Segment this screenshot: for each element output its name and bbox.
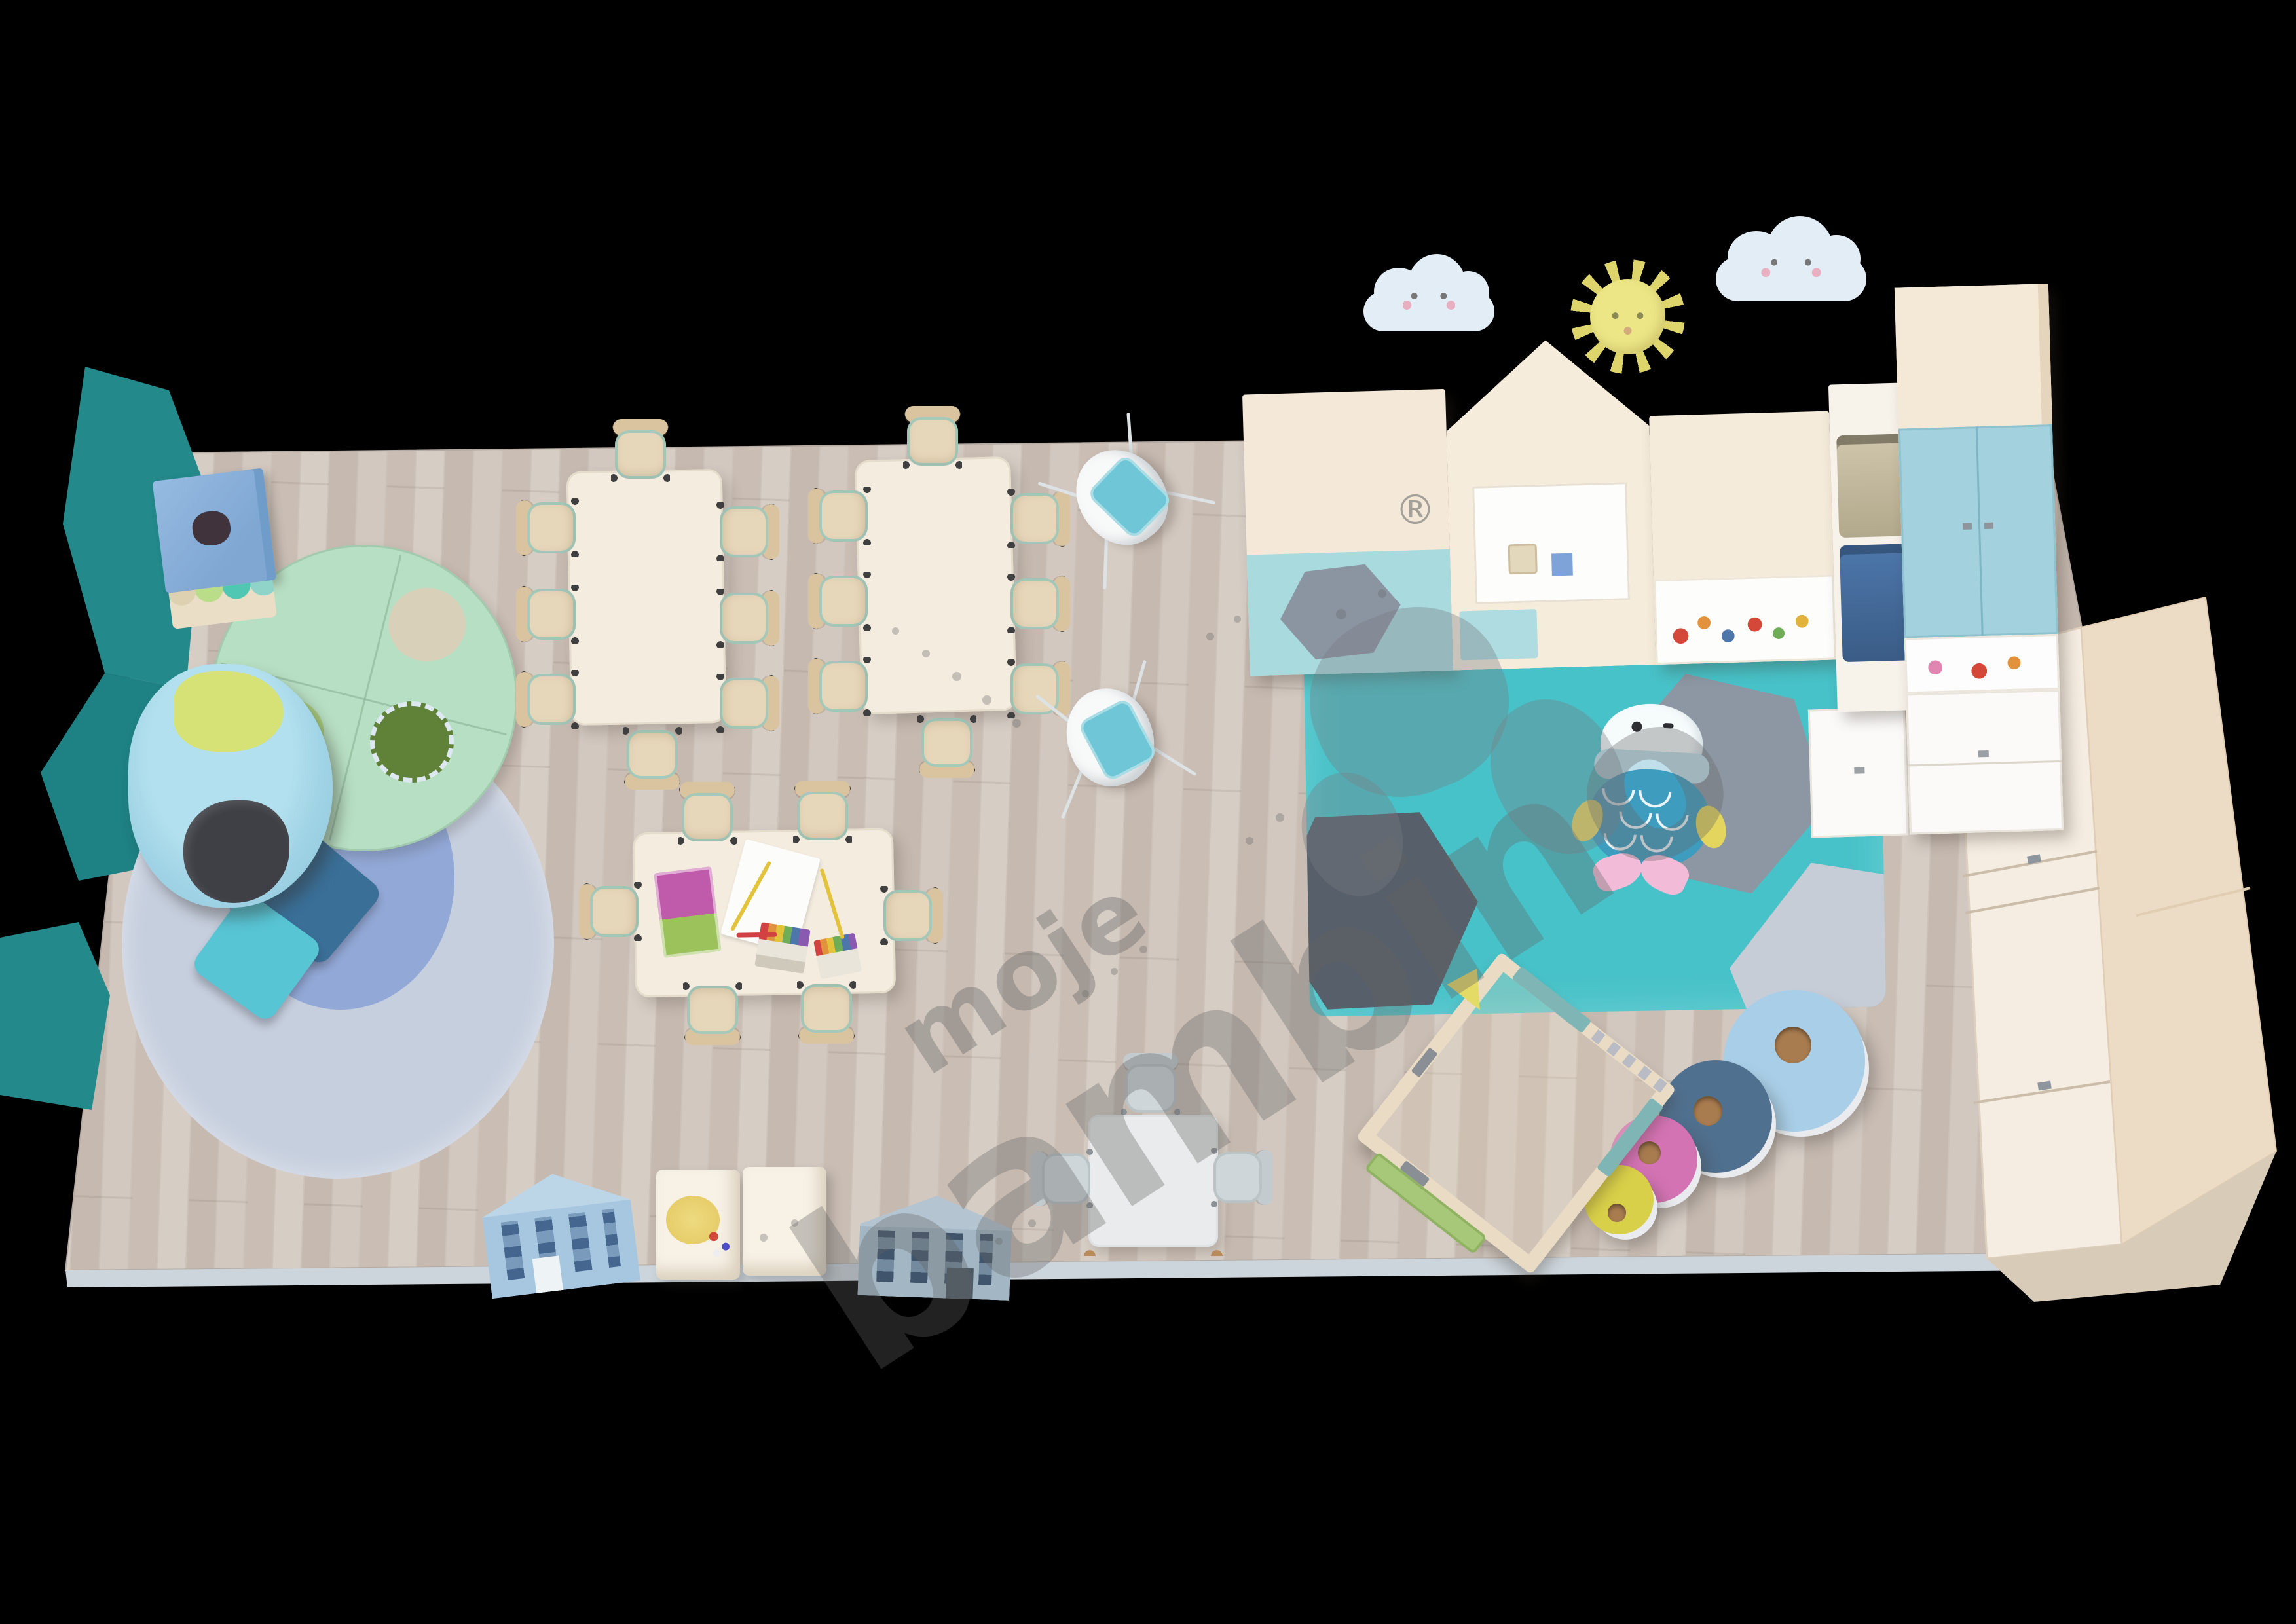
pencil-yellow-2 <box>820 868 845 940</box>
toy-shelf-toys <box>1659 588 1830 655</box>
kids-chair <box>611 419 670 482</box>
chair-seat <box>1125 1064 1176 1113</box>
kids-chair <box>623 727 682 790</box>
chair-seat <box>1010 493 1059 544</box>
tall-cabinet-white-doors <box>1906 690 2064 834</box>
storage-cube-1 <box>656 1170 740 1280</box>
registered-trademark-symbol: ® <box>1395 486 1435 534</box>
kids-chair <box>716 502 779 561</box>
tall-cabinet <box>1895 284 2064 834</box>
cubby-play-box <box>152 468 281 633</box>
pouf-hole <box>1694 1096 1723 1126</box>
chair-seat <box>682 793 733 841</box>
play-house-gable <box>1511 966 1591 1033</box>
bean-bag-leaf-print <box>174 671 284 752</box>
house-shelf-unit <box>1444 337 1656 670</box>
watermark-dot <box>1336 609 1346 619</box>
chair-seat <box>687 986 738 1034</box>
chair-seat <box>801 984 852 1033</box>
cube-small-toys <box>705 1227 735 1259</box>
play-house-roof-rails <box>1591 1029 1669 1094</box>
cubby-top-face <box>152 468 276 593</box>
pouf-hole <box>1775 1027 1811 1063</box>
shelf-toys <box>1508 544 1538 574</box>
play-house-gable <box>1597 1098 1664 1177</box>
shelf-toys <box>1908 638 2056 690</box>
tall-cabinet-top <box>1895 284 2052 428</box>
storage-bin-blue <box>1840 544 1912 662</box>
gray-chair <box>1210 1148 1273 1207</box>
bookcase-windows <box>876 1230 993 1285</box>
kids-chair <box>808 487 871 545</box>
kids-chair <box>579 882 642 941</box>
watermark-dot <box>1111 968 1118 975</box>
gray-chair <box>1031 1149 1094 1208</box>
watermark-dot <box>1246 837 1253 845</box>
storage-bin-khaki <box>1836 434 1908 538</box>
watermark-dot <box>1082 990 1089 997</box>
square-table <box>1088 1115 1218 1247</box>
watermark-dot <box>760 1234 768 1242</box>
kids-chair <box>683 982 742 1045</box>
square-table-legs <box>1079 1105 1227 1256</box>
art-table <box>633 828 896 998</box>
watermark-dot <box>952 672 961 681</box>
chair-seat <box>1010 578 1059 629</box>
watermark-dot <box>791 1219 798 1227</box>
chair-seat <box>627 730 678 779</box>
kids-table-2 <box>855 456 1017 714</box>
watermark-dot <box>982 695 991 705</box>
white-base-cabinet <box>1808 707 1908 838</box>
kids-chair <box>678 782 737 845</box>
kids-chair <box>716 589 779 648</box>
kids-chair <box>716 674 779 733</box>
chair-seat <box>1042 1153 1090 1204</box>
kids-chair <box>808 572 871 631</box>
watermark-dot <box>1028 1219 1036 1227</box>
watermark-dot <box>1234 616 1241 623</box>
watermark-dot <box>922 650 930 657</box>
watermark-dot <box>1139 946 1147 953</box>
door-seam <box>1908 760 2062 766</box>
kids-chair <box>516 670 579 729</box>
storage-cube-2 <box>743 1167 826 1276</box>
marker-red <box>737 932 777 938</box>
kids-table-1 <box>566 469 727 726</box>
watermark-dot <box>892 627 899 635</box>
watermark-dot <box>1276 813 1284 822</box>
bean-bag-dark-top <box>183 800 289 902</box>
cloud-face <box>1761 252 1821 278</box>
gray-chair <box>1121 1053 1180 1116</box>
room-render-canvas: moje bambino ® <box>0 0 2296 1624</box>
chair-seat <box>720 678 768 729</box>
chair-seat <box>615 430 666 479</box>
chair-seat <box>720 506 768 557</box>
kids-chair <box>917 715 976 778</box>
mat-circle-olive <box>370 701 454 783</box>
chair-seat <box>797 792 848 840</box>
chair-seat <box>527 674 576 725</box>
tall-cabinet-blue-doors <box>1898 424 2058 638</box>
kids-chair <box>903 406 962 469</box>
watermark-dot <box>1012 719 1021 728</box>
activity-play-house <box>1359 950 1673 1277</box>
watermark-dot <box>995 1238 1003 1245</box>
wall-decal-leaf-bottom <box>0 922 110 1110</box>
play-house-activity-panel <box>1364 1152 1487 1255</box>
chair-seat <box>921 718 972 767</box>
kids-chair <box>1007 574 1070 633</box>
house-shelf-interior <box>1472 482 1630 604</box>
chair-seat <box>527 502 576 553</box>
play-house-walls <box>1356 951 1676 1274</box>
chair-seat <box>819 661 868 712</box>
kids-chair <box>797 981 856 1044</box>
toy-shelf-unit <box>1649 411 1836 665</box>
chair-seat <box>819 576 868 627</box>
kids-chair <box>516 585 579 644</box>
picture-book <box>654 866 721 958</box>
chair-seat <box>590 886 639 937</box>
watermark-dot <box>1206 633 1214 640</box>
play-house-window <box>1411 1047 1438 1077</box>
bookcase-door <box>946 1268 974 1299</box>
cubby-hole <box>191 509 232 547</box>
cabinet-handle <box>1854 767 1864 773</box>
kids-chair <box>880 886 943 945</box>
chair-seat <box>1213 1152 1262 1203</box>
bean-bag <box>128 664 333 908</box>
bookcase-door <box>532 1255 563 1293</box>
chair-seat <box>527 589 576 640</box>
door-handle <box>1984 523 1993 529</box>
chair-seat <box>819 490 868 542</box>
kids-chair <box>516 498 579 557</box>
door-handle <box>1963 523 1972 530</box>
crayon-box-2 <box>813 932 862 979</box>
chair-seat <box>907 417 958 466</box>
chair-seat <box>883 890 932 941</box>
door-handle <box>1978 750 1989 757</box>
door-seam <box>1975 426 1983 636</box>
tall-cabinet-toy-shelf <box>1904 634 2060 694</box>
crayon-box-1 <box>754 922 811 974</box>
play-house-flag <box>1447 969 1495 1018</box>
kids-chair <box>808 657 871 716</box>
kids-chair <box>793 781 852 843</box>
mat-circle-beige <box>388 588 466 661</box>
watermark-dot <box>1378 589 1386 598</box>
chair-seat <box>720 593 768 644</box>
